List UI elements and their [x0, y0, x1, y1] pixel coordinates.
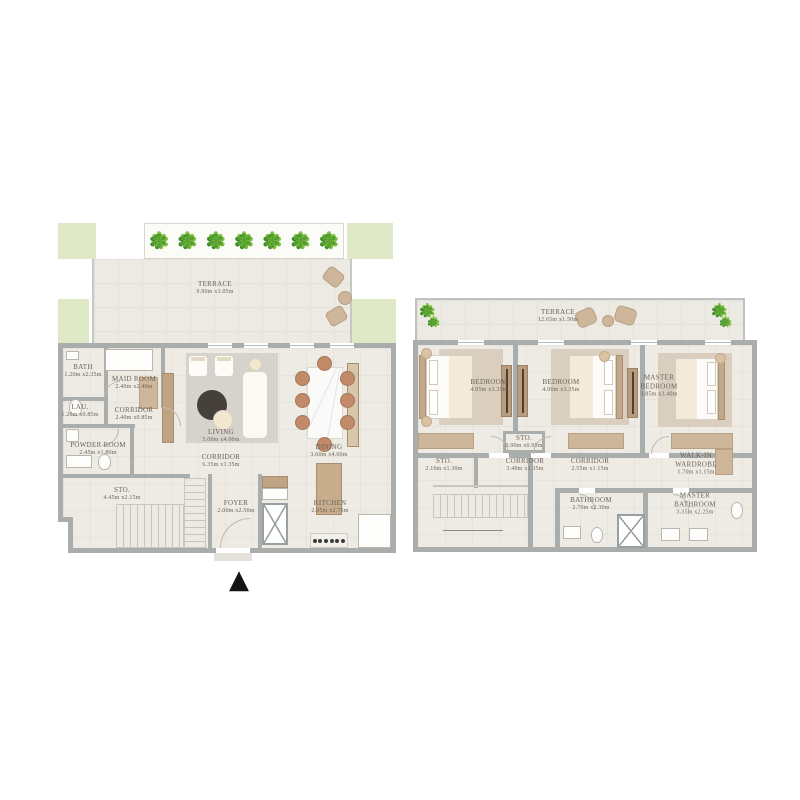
dining-table	[307, 367, 343, 439]
room-label-master-bedroom: MASTER BEDROOM 3.85m x3.40m	[636, 374, 682, 399]
room-label-storage: STO. 4.45m x2.15m	[80, 486, 164, 502]
bed-pillow	[604, 390, 613, 415]
dresser	[568, 433, 624, 449]
pouf	[715, 353, 726, 364]
stair-edge	[433, 485, 528, 487]
planter-patch	[58, 223, 96, 259]
sliding-door	[458, 340, 484, 345]
room-label-powder-room: POWDER ROOM 2.45m x1.80m	[56, 441, 140, 457]
room-label-corridor-b: CORRIDOR 6.35m x1.35m	[179, 453, 263, 469]
stair-direction-line	[443, 530, 503, 531]
bed-pillow	[429, 390, 438, 415]
dining-chair	[295, 415, 310, 430]
room-label-walkin-wardrobe: WALK-IN WARDROBE 1.70m x1.15m	[670, 452, 722, 477]
upper-floor-plan: ✽ ✽ ✽ ✽	[413, 298, 757, 552]
terrace-floor	[92, 259, 352, 343]
plant-icon: ✽	[236, 229, 253, 253]
side-table	[249, 358, 262, 371]
stove-hob	[310, 533, 348, 548]
master-bath-sink	[689, 528, 708, 541]
pouf	[421, 416, 432, 427]
dining-chair	[295, 371, 310, 386]
room-label-master-bathroom: MASTER BATHROOM 3.35m x2.25m	[669, 492, 721, 517]
master-bath-toilet	[731, 502, 743, 519]
bed-headboard	[616, 355, 623, 419]
plant-icon: ✽	[151, 229, 168, 253]
room-label-kitchen: KITCHEN 2.95m x2.75m	[288, 499, 372, 515]
room-label-bedroom-2: BEDROOM 4.00m x3.35m	[538, 378, 584, 394]
staircase-flight	[433, 494, 528, 518]
wall	[63, 474, 190, 478]
terrace-side-table	[338, 291, 352, 305]
sliding-door	[244, 343, 268, 348]
room-label-bathroom: BATHROOM 2.70m x2.30m	[549, 496, 633, 512]
plant-icon: ✽	[721, 316, 730, 329]
sliding-door	[330, 343, 354, 348]
wall	[63, 397, 104, 401]
planter-patch	[351, 299, 396, 343]
planter-patch	[347, 223, 393, 259]
room-label-storage-small: STO. 0.90m x0.95m	[482, 434, 566, 450]
wall	[640, 345, 645, 453]
plant-icon: ✽	[264, 229, 281, 253]
sliding-door	[290, 343, 314, 348]
sliding-door	[705, 340, 731, 345]
pouf	[599, 351, 610, 362]
armchair	[214, 355, 234, 377]
dining-chair	[317, 356, 332, 371]
bathroom-toilet	[591, 527, 603, 543]
facade-notch	[58, 517, 73, 553]
bed-pillow	[707, 390, 716, 414]
bed-pillow	[604, 360, 613, 385]
elevator-shaft	[617, 514, 645, 548]
dining-chair	[295, 393, 310, 408]
dining-chair	[340, 415, 355, 430]
bed-pillow	[707, 362, 716, 386]
dresser	[418, 433, 474, 449]
kitchen-appliance	[358, 514, 391, 548]
staircase-flight	[116, 504, 184, 548]
bathroom-sink	[563, 526, 581, 539]
armchair	[188, 355, 208, 377]
room-label-maid-room: MAID ROOM 2.40m x2.40m	[92, 375, 176, 391]
walkin-wardrobe-unit	[671, 433, 733, 449]
planter-patch	[58, 299, 89, 343]
bed-headboard	[419, 355, 426, 419]
dining-chair	[340, 393, 355, 408]
ground-floor-plan: ✽ ✽ ✽ ✽ ✽ ✽ ✽	[58, 215, 396, 575]
room-label-terrace: TERRACE 9.90m x3.05m	[173, 280, 257, 296]
room-label-foyer: FOYER 2.00m x2.50m	[194, 499, 278, 515]
wardrobe	[517, 365, 528, 417]
dining-chair	[340, 371, 355, 386]
door-opening	[579, 488, 595, 493]
pouf	[421, 348, 432, 359]
room-label-living: LIVING 5.00m x4.00m	[179, 428, 263, 444]
bed-pillow	[429, 360, 438, 385]
floorplan-page: { "colors": { "wall": "#a9adac", "floor"…	[0, 0, 800, 800]
room-label-bedroom-1: BEDROOM 4.05m x3.35m	[466, 378, 512, 394]
plant-icon: ✽	[429, 316, 438, 329]
room-label-terrace: TERRACE 12.65m x1.50m	[516, 308, 600, 324]
plant-icon: ✽	[292, 229, 309, 253]
bath-sink	[66, 351, 79, 360]
sliding-door	[538, 340, 564, 345]
room-label-corridor-a: CORRIDOR 2.40m x0.85m	[92, 406, 176, 422]
foyer-closet	[262, 476, 288, 488]
sliding-door	[208, 343, 232, 348]
room-label-corridor-b: CORRIDOR 2.55m x1.15m	[548, 457, 632, 473]
terrace-planter-box: ✽ ✽ ✽ ✽ ✽ ✽ ✽	[144, 223, 344, 259]
wall	[63, 424, 135, 428]
bed-headboard	[718, 358, 725, 420]
master-bath-sink	[661, 528, 680, 541]
entry-direction-marker: ▲	[229, 567, 249, 593]
entry-step	[214, 553, 252, 561]
plant-icon: ✽	[207, 229, 224, 253]
plant-icon: ✽	[179, 229, 196, 253]
plant-icon: ✽	[320, 229, 337, 253]
room-label-storage: STO. 2.10m x1.30m	[402, 457, 486, 473]
room-label-dining: DINING 3.60m x4.60m	[287, 443, 371, 459]
terrace-side-table	[602, 315, 614, 327]
